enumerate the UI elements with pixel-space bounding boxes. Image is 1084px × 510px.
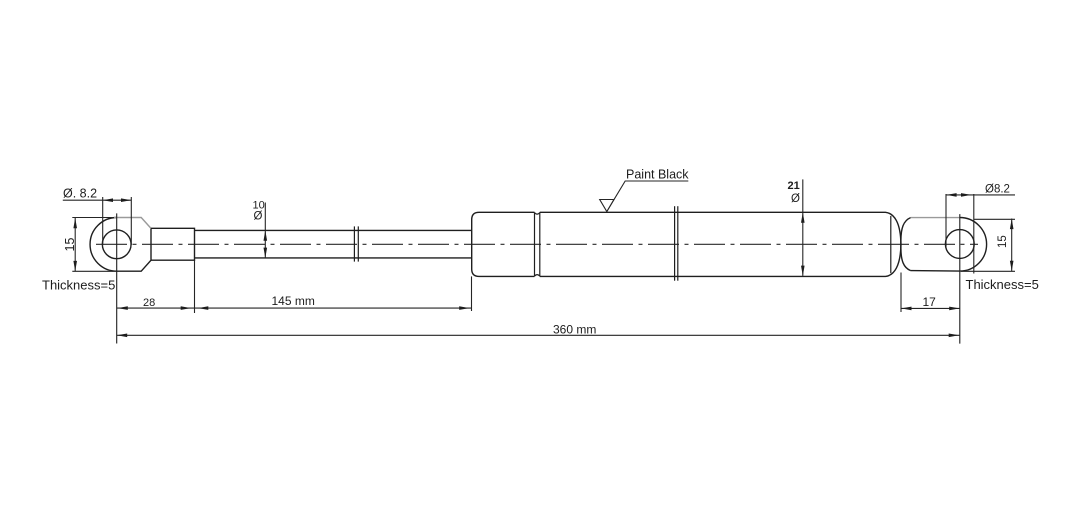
svg-text:Ø. 8.2: Ø. 8.2	[63, 187, 97, 201]
svg-text:Ø8.2: Ø8.2	[985, 184, 1010, 196]
svg-text:21: 21	[788, 180, 800, 192]
svg-text:Paint Black: Paint Black	[626, 168, 689, 182]
svg-text:15: 15	[997, 235, 1009, 248]
svg-text:28: 28	[143, 297, 155, 309]
svg-text:Ø: Ø	[791, 193, 800, 205]
svg-text:15: 15	[63, 238, 77, 252]
svg-text:Thickness=5: Thickness=5	[42, 278, 115, 293]
svg-text:360 mm: 360 mm	[553, 323, 596, 337]
svg-text:17: 17	[923, 295, 937, 309]
svg-text:145 mm: 145 mm	[272, 294, 315, 308]
svg-text:Thickness=5: Thickness=5	[966, 277, 1039, 292]
svg-text:Ø: Ø	[254, 211, 263, 223]
